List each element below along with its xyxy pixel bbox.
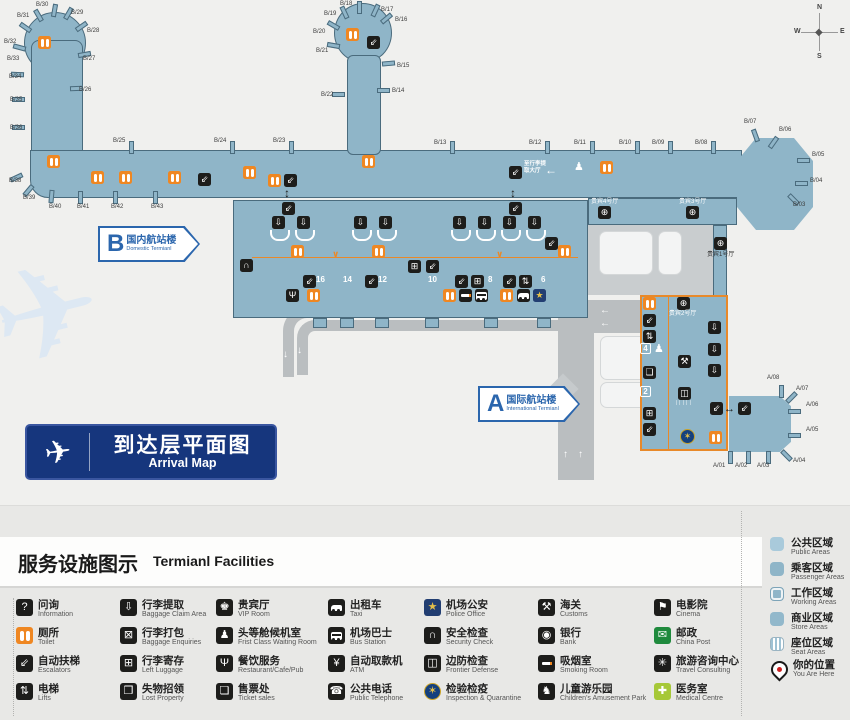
gate-label: B/42 bbox=[111, 204, 123, 210]
facility-label-zh: 自动扶梯 bbox=[38, 655, 80, 667]
facility-label-en: Police Office bbox=[446, 611, 488, 619]
facility-item-information: ?问询Information bbox=[16, 599, 73, 619]
travel-consulting-icon: ✳ bbox=[654, 655, 671, 672]
public-area-swatch bbox=[770, 537, 784, 551]
lost-property-icon: ❒ bbox=[120, 683, 137, 700]
facility-item-frontier-defense: ◫边防检查Frontier Defense bbox=[424, 655, 498, 675]
facility-label-zh: 机场巴士 bbox=[350, 627, 392, 639]
facility-label-en: Security Check bbox=[446, 639, 493, 647]
escalator-icon: ⇙ bbox=[710, 402, 723, 415]
area-label-en: Passenger Areas bbox=[791, 574, 844, 582]
gate-label: B/43 bbox=[151, 204, 163, 210]
exit-number: 14 bbox=[343, 276, 352, 284]
facility-item-lost-property: ❒失物招领Lost Property bbox=[120, 683, 184, 703]
facility-label-en: Public Telephone bbox=[350, 695, 403, 703]
facility-label-en: Restaurant/Cafe/Pub bbox=[238, 667, 303, 675]
baggage-claim-icon: ⇩ bbox=[503, 216, 516, 229]
road-direction-arrow: ← bbox=[600, 319, 610, 329]
facility-label-zh: 检验检疫 bbox=[446, 683, 521, 695]
facility-label-en: ATM bbox=[350, 667, 403, 675]
gate-stub bbox=[788, 409, 801, 414]
seat-area-swatch bbox=[770, 637, 784, 651]
toilet-icon bbox=[243, 166, 256, 179]
vip-hall-label: 贵宾1号厅 bbox=[707, 252, 734, 258]
facility-label-zh: 自动取款机 bbox=[350, 655, 403, 667]
facility-label-en: Lifts bbox=[38, 695, 59, 703]
bank-icon: ◉ bbox=[538, 627, 555, 644]
gate-stub bbox=[129, 141, 134, 154]
toilet-icon bbox=[91, 171, 104, 184]
gate-label: B/09 bbox=[652, 140, 664, 146]
escalator-icon: ⇙ bbox=[426, 260, 439, 273]
ticket-icon: ❏ bbox=[643, 366, 656, 379]
transfer-arrow-icon: ↔ bbox=[724, 404, 735, 415]
legend-divider-left bbox=[13, 598, 14, 716]
working-area-swatch bbox=[770, 587, 784, 601]
first-class-waiting-room-icon: ♟ bbox=[216, 627, 233, 644]
terminal-a-zh: 国际航站楼 bbox=[506, 395, 558, 406]
taxi-icon bbox=[328, 599, 345, 616]
facility-item-atm: ¥自动取款机ATM bbox=[328, 655, 403, 675]
facility-label-en: Ticket sales bbox=[238, 695, 275, 703]
level-link-arrow-icon: ↕ bbox=[284, 187, 290, 199]
gate-label: B/03 bbox=[793, 202, 805, 208]
facility-item-inspection-quarantine: ✶检验检疫Inspection & Quarantine bbox=[424, 683, 521, 703]
road-direction-arrow: ↑ bbox=[563, 450, 568, 460]
you-are-here-en: You Are Here bbox=[793, 671, 835, 679]
you-are-here-item: 你的位置You Are Here bbox=[793, 659, 835, 679]
gate-stub bbox=[797, 158, 810, 163]
taxi-icon-shape bbox=[518, 293, 529, 299]
exit-number: 10 bbox=[428, 276, 437, 284]
escalator-icon: ⇙ bbox=[303, 275, 316, 288]
area-item-working: 工作区域Working Areas bbox=[770, 587, 836, 607]
facility-label-zh: 问询 bbox=[38, 599, 73, 611]
facility-item-taxi: 出租车Taxi bbox=[328, 599, 382, 619]
gate-stub bbox=[357, 1, 362, 14]
escalator-icon: ⇙ bbox=[282, 202, 295, 215]
toilet-icon bbox=[362, 155, 375, 168]
gate-stub bbox=[153, 191, 158, 204]
toilet-icon bbox=[268, 174, 281, 187]
escalator-icon: ⇙ bbox=[367, 36, 380, 49]
area-label-zh: 座位区域 bbox=[791, 637, 833, 649]
level-link-arrow-icon: ↕ bbox=[510, 187, 516, 199]
facility-label-en: Information bbox=[38, 611, 73, 619]
facility-item-security-check: ∩安全检查Security Check bbox=[424, 627, 493, 647]
gate-label: B/27 bbox=[83, 56, 95, 62]
facility-label-en: Baggage Claim Area bbox=[142, 611, 206, 619]
gate-label: B/35 bbox=[10, 97, 22, 103]
facility-label-zh: 出租车 bbox=[350, 599, 382, 611]
walking-person-icon: ♟ bbox=[574, 162, 584, 173]
escalators-icon: ⇙ bbox=[16, 655, 33, 672]
area-label-zh: 商业区域 bbox=[791, 612, 833, 624]
facility-label-zh: 贵宾厅 bbox=[238, 599, 270, 611]
gate-label: B/08 bbox=[695, 140, 707, 146]
facility-label-en: Inspection & Quarantine bbox=[446, 695, 521, 703]
bus-station-shape bbox=[331, 632, 342, 640]
taxi-shape bbox=[331, 605, 342, 611]
facility-label-zh: 行李寄存 bbox=[142, 655, 184, 667]
gate-label: A/06 bbox=[806, 402, 818, 408]
terminal-b-zh: 国内航站楼 bbox=[126, 235, 176, 246]
gate-label: B/21 bbox=[316, 48, 328, 54]
facility-item-customs: ⚒海关Customs bbox=[538, 599, 588, 619]
terminal-map: ✈ B 国内航站楼 bbox=[0, 0, 850, 505]
gate-label: B/15 bbox=[397, 63, 409, 69]
area-item-public: 公共区域Public Areas bbox=[770, 537, 833, 557]
gate-label: B/14 bbox=[392, 88, 404, 94]
facility-label-en: Lost Property bbox=[142, 695, 184, 703]
baggage-claim-icon: ⇩ bbox=[708, 364, 721, 377]
gate-label: B/22 bbox=[321, 92, 333, 98]
gate-label: B/38 bbox=[9, 178, 21, 184]
compass-w: W bbox=[794, 28, 801, 35]
gate-stub bbox=[728, 451, 733, 464]
area-label-zh: 公共区域 bbox=[791, 537, 833, 549]
customs-icon: ⚒ bbox=[538, 599, 555, 616]
gate-label: B/29 bbox=[71, 10, 83, 16]
escalator-icon: ⇙ bbox=[365, 275, 378, 288]
toilet-icon bbox=[38, 36, 51, 49]
lift-icon: ⇅ bbox=[643, 330, 656, 343]
facility-item-ticket-sales: ❏售票处Ticket sales bbox=[216, 683, 275, 703]
guide-arrow-icon: ∨ bbox=[496, 250, 503, 259]
road-direction-arrow: ↓ bbox=[283, 350, 288, 360]
facility-label-en: Taxi bbox=[350, 611, 382, 619]
facility-label-en: Smoking Room bbox=[560, 667, 608, 675]
vip-hall-label: 贵宾2号厅 bbox=[669, 311, 696, 317]
baggage-claim-icon: ⇩ bbox=[272, 216, 285, 229]
gate-label: B/19 bbox=[324, 11, 336, 17]
area-label-en: Store Areas bbox=[791, 624, 833, 632]
facility-label-zh: 失物招领 bbox=[142, 683, 184, 695]
baggage-claim-icon: ⇩ bbox=[478, 216, 491, 229]
hall-exit-stub bbox=[537, 318, 551, 328]
gate-label: B/41 bbox=[77, 204, 89, 210]
escalator-icon: ⇙ bbox=[455, 275, 468, 288]
terminal-b-en: Domestic Termianl bbox=[126, 246, 176, 252]
facility-label-zh: 头等舱候机室 bbox=[238, 627, 317, 639]
store-area-swatch bbox=[770, 612, 784, 626]
toilet-icon bbox=[291, 245, 304, 258]
vip-room-icon: ⊕ bbox=[677, 297, 690, 310]
escalator-icon: ⇙ bbox=[509, 202, 522, 215]
gate-stub bbox=[545, 141, 550, 154]
you-are-here-zh: 你的位置 bbox=[793, 659, 835, 671]
facility-label-zh: 机场公安 bbox=[446, 599, 488, 611]
baggage-claim-icon: ⇩ bbox=[708, 321, 721, 334]
baggage-claim-icon: ⇩ bbox=[120, 599, 137, 616]
gate-label: B/04 bbox=[810, 178, 822, 184]
facility-label-en: Bus Station bbox=[350, 639, 392, 647]
escalator-icon: ⇙ bbox=[643, 423, 656, 436]
gate-stub bbox=[779, 385, 784, 398]
baggage-claim-icon: ⇩ bbox=[297, 216, 310, 229]
you-are-here-pin bbox=[767, 657, 791, 681]
hall-exit-stub bbox=[425, 318, 439, 328]
information-icon: ? bbox=[16, 599, 33, 616]
facility-item-first-class-waiting-room: ♟头等舱候机室Frist Class Waiting Room bbox=[216, 627, 317, 647]
area-label-zh: 工作区域 bbox=[791, 587, 836, 599]
gate-label: B/30 bbox=[36, 2, 48, 8]
facility-label-zh: 儿童游乐园 bbox=[560, 683, 646, 695]
bus-icon-shape bbox=[476, 292, 487, 300]
airplane-icon: ✈ bbox=[25, 432, 91, 472]
exit-number: 6 bbox=[541, 276, 545, 284]
toilet-icon bbox=[119, 171, 132, 184]
facility-item-medical-centre: ✚医务室Medical Centre bbox=[654, 683, 723, 703]
hall-exit-stub bbox=[340, 318, 354, 328]
gate-stub bbox=[635, 141, 640, 154]
gate-label: A/01 bbox=[713, 463, 725, 469]
baggage-enquiries-icon: ⊠ bbox=[120, 627, 137, 644]
facility-label-zh: 边防检查 bbox=[446, 655, 498, 667]
parking-block bbox=[599, 231, 653, 275]
gate-label: B/31 bbox=[17, 13, 29, 19]
gate-label: B/07 bbox=[744, 119, 756, 125]
legend-title-zh: 服务设施图示 bbox=[18, 548, 138, 577]
baggage-claim-icon: ⇩ bbox=[528, 216, 541, 229]
international-building-divider bbox=[668, 297, 669, 449]
facility-label-en: Frontier Defense bbox=[446, 667, 498, 675]
facility-label-zh: 公共电话 bbox=[350, 683, 403, 695]
toilet-icon bbox=[16, 627, 33, 644]
children-amusement-park-icon: ♞ bbox=[538, 683, 555, 700]
gate-stub bbox=[668, 141, 673, 154]
toilet-icon bbox=[307, 289, 320, 302]
gate-stub bbox=[751, 129, 760, 143]
frontier-defense-icon: ◫ bbox=[424, 655, 441, 672]
terminal-b-pier1-stem bbox=[31, 40, 83, 158]
lift-icon: ⇅ bbox=[519, 275, 532, 288]
facility-label-en: Escalators bbox=[38, 667, 80, 675]
bus-station-icon bbox=[328, 627, 345, 644]
facility-label-zh: 海关 bbox=[560, 599, 588, 611]
escalator-icon: ⇙ bbox=[198, 173, 211, 186]
restaurant-icon: Ψ bbox=[216, 655, 233, 672]
facility-item-baggage-enquiries: ⊠行李打包Baggage Enquiries bbox=[120, 627, 201, 647]
facility-label-en: Cinema bbox=[676, 611, 708, 619]
toilet-icon bbox=[443, 289, 456, 302]
vip-hall-label: 贵宾3号厅 bbox=[679, 199, 706, 205]
gate-label: A/03 bbox=[757, 463, 769, 469]
facility-item-toilet: 厕所Toilet bbox=[16, 627, 59, 647]
gate-label: A/02 bbox=[735, 463, 747, 469]
gate-label: B/24 bbox=[214, 138, 226, 144]
inspection-quarantine-icon: ✶ bbox=[424, 683, 441, 700]
vip-hall-label: 贵宾4号厅 bbox=[591, 199, 618, 205]
facility-item-cinema: ⚑电影院Cinema bbox=[654, 599, 708, 619]
facility-item-vip-room: ♚贵宾厅VIP Room bbox=[216, 599, 270, 619]
taxi-icon bbox=[517, 289, 530, 302]
gate-stub bbox=[327, 42, 341, 49]
frontier-hatch-marks: ∣∣∣∣∣ bbox=[675, 400, 693, 406]
facility-label-en: VIP Room bbox=[238, 611, 270, 619]
facility-item-children-amusement-park: ♞儿童游乐园Children's Amusement Park bbox=[538, 683, 646, 703]
gate-label: B/17 bbox=[381, 7, 393, 13]
gate-stub bbox=[377, 88, 390, 93]
escalator-icon: ⇙ bbox=[503, 275, 516, 288]
facility-label-zh: 吸烟室 bbox=[560, 655, 608, 667]
facility-label-zh: 行李打包 bbox=[142, 627, 201, 639]
gate-stub bbox=[795, 181, 808, 186]
toilet-icon bbox=[558, 245, 571, 258]
toilet-icon bbox=[643, 297, 656, 310]
facility-item-public-telephone: ☎公共电话Public Telephone bbox=[328, 683, 403, 703]
road-direction-arrow: ↑ bbox=[578, 450, 583, 460]
gate-stub bbox=[450, 141, 455, 154]
ticket-sales-icon: ❏ bbox=[216, 683, 233, 700]
exit-number: 8 bbox=[488, 276, 492, 284]
facility-label-en: China Post bbox=[676, 639, 710, 647]
facility-item-travel-consulting: ✳旅游咨询中心Travel Consulting bbox=[654, 655, 739, 675]
walking-person-icon: ♟ bbox=[654, 344, 664, 355]
gate-label: B/05 bbox=[812, 152, 824, 158]
banner-title-zh: 到达层平面图 bbox=[90, 434, 275, 457]
gate-label: A/04 bbox=[793, 458, 805, 464]
inspection-quarantine-icon: ✶ bbox=[680, 429, 695, 444]
cinema-icon: ⚑ bbox=[654, 599, 671, 616]
passenger-area-swatch bbox=[770, 562, 784, 576]
area-item-passenger: 乘客区域Passenger Areas bbox=[770, 562, 844, 582]
hall-exit-stub bbox=[313, 318, 327, 328]
facility-label-zh: 售票处 bbox=[238, 683, 275, 695]
gate-label: B/28 bbox=[87, 28, 99, 34]
legend-divider-right bbox=[741, 511, 742, 716]
gate-stub bbox=[785, 391, 798, 404]
toilet-icon bbox=[168, 171, 181, 184]
legend-title-en: Termianl Facilities bbox=[153, 553, 274, 569]
baggage-claim-icon: ⇩ bbox=[379, 216, 392, 229]
area-label-en: Seat Areas bbox=[791, 649, 833, 657]
gate-stub bbox=[711, 141, 716, 154]
gate-label: B/06 bbox=[779, 127, 791, 133]
baggage-claim-icon: ⇩ bbox=[453, 216, 466, 229]
baggage-claim-icon: ⇩ bbox=[708, 343, 721, 356]
facility-item-bus-station: 机场巴士Bus Station bbox=[328, 627, 392, 647]
gate-stub bbox=[780, 449, 793, 462]
terminal-a-en: International Termianl bbox=[506, 406, 558, 412]
gate-stub bbox=[78, 191, 83, 204]
hall-exit-stub bbox=[375, 318, 389, 328]
frontier-defense-icon: ◫ bbox=[678, 387, 691, 400]
smoking-icon bbox=[459, 289, 472, 302]
atm-icon: ¥ bbox=[328, 655, 345, 672]
gate-stub bbox=[289, 141, 294, 154]
terminal-a-label: A 国际航站楼 International Termianl bbox=[478, 386, 580, 422]
medical-centre-icon: ✚ bbox=[654, 683, 671, 700]
security-check-icon: ∩ bbox=[424, 627, 441, 644]
facility-label-en: Medical Centre bbox=[676, 695, 723, 703]
gate-stub bbox=[332, 92, 345, 97]
vip-room-icon: ♚ bbox=[216, 599, 233, 616]
hall-number-badge: 2 bbox=[640, 386, 651, 397]
gate-stub bbox=[590, 141, 595, 154]
terminal-b-label: B 国内航站楼 Domestic Termianl bbox=[98, 226, 200, 262]
toilet-icon bbox=[600, 161, 613, 174]
facility-label-zh: 旅游咨询中心 bbox=[676, 655, 739, 667]
gate-label: B/33 bbox=[7, 56, 19, 62]
exit-number: 12 bbox=[378, 276, 387, 284]
facility-label-zh: 邮政 bbox=[676, 627, 710, 639]
terminal-a-letter: A bbox=[487, 392, 504, 416]
gate-stub bbox=[788, 433, 801, 438]
terminal-b-concourse bbox=[30, 150, 742, 198]
facility-label-en: Baggage Enquiries bbox=[142, 639, 201, 647]
facility-label-zh: 行李提取 bbox=[142, 599, 206, 611]
facility-label-zh: 电梯 bbox=[38, 683, 59, 695]
area-item-store: 商业区域Store Areas bbox=[770, 612, 833, 632]
banner-title-en: Arrival Map bbox=[90, 457, 275, 471]
gate-label: B/36 bbox=[10, 125, 22, 131]
police-icon: ★ bbox=[533, 289, 546, 302]
left-luggage-icon: ⊞ bbox=[408, 260, 421, 273]
toilet-icon bbox=[47, 155, 60, 168]
area-label-en: Public Areas bbox=[791, 549, 833, 557]
facility-label-zh: 餐饮服务 bbox=[238, 655, 303, 667]
terminal-b-pier2-stem bbox=[347, 55, 381, 155]
left-arrow-icon: ← bbox=[545, 164, 557, 176]
facility-label-zh: 医务室 bbox=[676, 683, 723, 695]
compass-rose: N W E S ◆ bbox=[798, 4, 842, 60]
gate-label: A/05 bbox=[806, 427, 818, 433]
left-luggage-icon: ⊞ bbox=[471, 275, 484, 288]
compass-e: E bbox=[840, 28, 845, 35]
restaurant-icon: Ψ bbox=[286, 289, 299, 302]
compass-star-icon: ◆ bbox=[815, 27, 823, 38]
gate-label: B/20 bbox=[313, 29, 325, 35]
area-label-zh: 乘客区域 bbox=[791, 562, 844, 574]
smoking-icon-shape bbox=[461, 294, 471, 297]
toilet-icon bbox=[709, 431, 722, 444]
baggage-claim-icon: ⇩ bbox=[354, 216, 367, 229]
gate-label: B/39 bbox=[23, 195, 35, 201]
area-item-seat: 座位区域Seat Areas bbox=[770, 637, 833, 657]
parking-block bbox=[658, 231, 682, 275]
facility-label-en: Frist Class Waiting Room bbox=[238, 639, 317, 647]
guide-arrow-icon: ∨ bbox=[332, 250, 339, 259]
china-post-icon: ✉ bbox=[654, 627, 671, 644]
public-telephone-icon: ☎ bbox=[328, 683, 345, 700]
escalator-icon: ⇙ bbox=[545, 237, 558, 250]
lifts-icon: ⇅ bbox=[16, 683, 33, 700]
smoking-room-icon bbox=[538, 655, 555, 672]
arrival-map-page: ✈ B 国内航站楼 bbox=[0, 0, 850, 720]
gate-label: A/08 bbox=[767, 375, 779, 381]
road-direction-arrow: ↓ bbox=[297, 346, 302, 356]
escalator-icon: ⇙ bbox=[738, 402, 751, 415]
toilet-icon bbox=[346, 28, 359, 41]
toilet-icon bbox=[500, 289, 513, 302]
facility-item-smoking-room: 吸烟室Smoking Room bbox=[538, 655, 608, 675]
facility-item-left-luggage: ⊞行李寄存Left Luggage bbox=[120, 655, 184, 675]
vip-room-icon: ⊕ bbox=[598, 206, 611, 219]
road-loop-inner bbox=[297, 320, 640, 375]
gate-label: B/13 bbox=[434, 140, 446, 146]
facility-item-china-post: ✉邮政China Post bbox=[654, 627, 710, 647]
facility-label-en: Toilet bbox=[38, 639, 59, 647]
security-check-icon: ∩ bbox=[240, 259, 253, 272]
police-office-icon: ★ bbox=[424, 599, 441, 616]
facility-item-escalators: ⇙自动扶梯Escalators bbox=[16, 655, 80, 675]
gate-stub bbox=[382, 60, 395, 66]
facility-label-zh: 厕所 bbox=[38, 627, 59, 639]
vip-room-icon: ⊕ bbox=[686, 206, 699, 219]
gate-label: B/25 bbox=[113, 138, 125, 144]
gate-label: B/26 bbox=[79, 87, 91, 93]
